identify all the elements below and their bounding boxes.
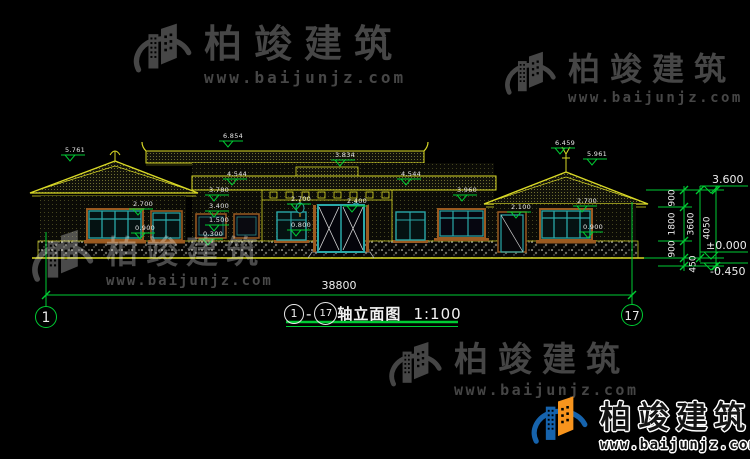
dim-450: 450	[690, 255, 699, 272]
elevation-triangle-icon	[128, 208, 154, 216]
right-center-window	[434, 209, 489, 241]
elevation-triangle-icon	[130, 232, 156, 240]
cad-elevation-screenshot: 38800 1 17 1 - 17 轴立面图 1:100 900 1800 90…	[0, 0, 750, 459]
elevation-triangle-icon	[222, 178, 248, 186]
title-separator: -	[306, 305, 312, 323]
dim-1800: 1800	[669, 213, 678, 236]
elevation-marker: 6.459	[550, 140, 576, 155]
elevation-marker: 3.780	[204, 187, 230, 202]
dim-3600: 3600	[688, 213, 697, 236]
total-width-dimension: 38800	[306, 280, 372, 291]
main-entrance-door	[308, 205, 374, 258]
elevation-triangle-icon	[204, 194, 230, 202]
elevation-marker: 0.800	[286, 222, 312, 237]
title-axis-end: 17	[314, 302, 337, 325]
elevation-eave: 3.600	[712, 174, 744, 185]
elevation-triangle-icon	[60, 154, 86, 162]
elevation-triangle-icon	[286, 229, 312, 237]
dim-900-bottom: 900	[669, 240, 678, 257]
elevation-triangle-icon	[582, 158, 608, 166]
elevation-marker: 3.834	[330, 152, 356, 167]
elevation-triangle-icon	[550, 147, 576, 155]
elevation-marker: 2.100	[506, 204, 532, 219]
dim-900-top: 900	[669, 189, 678, 206]
elevation-triangle-icon	[286, 203, 312, 211]
axis-bubble-right: 17	[621, 309, 643, 323]
elevation-marker: 4.544	[396, 171, 422, 186]
elevation-triangle-icon	[396, 178, 422, 186]
elevation-marker: 2.400	[342, 198, 368, 213]
porch-right-window	[393, 212, 428, 243]
elevation-triangle-icon	[578, 231, 604, 239]
elevation-marker: 0.900	[578, 224, 604, 239]
elevation-triangle-icon	[342, 205, 368, 213]
title-name: 轴立面图	[337, 303, 401, 324]
right-wing-roof	[484, 147, 648, 207]
axis-bubble-left: 1	[36, 310, 56, 326]
elevation-triangle-icon	[452, 194, 478, 202]
elevation-marker: 2.700	[286, 196, 312, 211]
dim-4050: 4050	[704, 217, 713, 240]
elevation-marker: 4.544	[222, 171, 248, 186]
elevation-marker: 0.900	[130, 225, 156, 240]
drawing-title: 1 - 17 轴立面图 1:100	[284, 302, 462, 325]
elevation-marker: 2.700	[128, 201, 154, 216]
title-axis-start: 1	[284, 304, 304, 324]
title-scale: 1:100	[413, 305, 461, 323]
elevation-marker: 5.761	[60, 147, 86, 162]
elevation-drawing	[0, 0, 750, 459]
elevation-ground: ±0.000	[706, 240, 747, 251]
elevation-foundation: -0.450	[710, 266, 745, 277]
elevation-triangle-icon	[218, 140, 244, 148]
elevation-triangle-icon	[506, 211, 532, 219]
elevation-marker: 6.854	[218, 133, 244, 148]
elevation-marker: 0.300	[198, 231, 224, 246]
elevation-marker: 5.961	[582, 151, 608, 166]
elevation-triangle-icon	[330, 159, 356, 167]
elevation-triangle-icon	[198, 238, 224, 246]
main-hall-roof	[142, 142, 428, 165]
elevation-marker: 3.960	[452, 187, 478, 202]
elevation-marker: 2.700	[572, 198, 598, 213]
elevation-triangle-icon	[572, 205, 598, 213]
